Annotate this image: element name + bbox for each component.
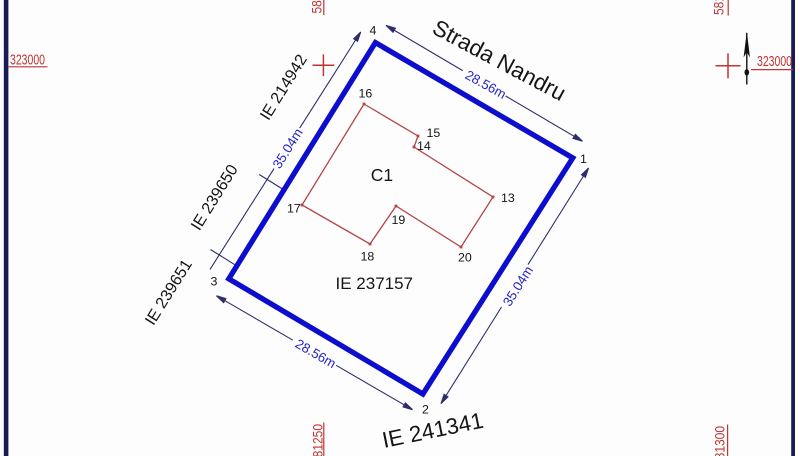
svg-text:3: 3 [211,275,218,289]
svg-text:581250: 581250 [310,0,325,14]
svg-text:IE 237157: IE 237157 [336,274,414,293]
svg-text:13: 13 [501,191,515,205]
svg-text:14: 14 [417,139,431,153]
svg-text:323000: 323000 [757,54,792,70]
svg-text:581300: 581300 [711,426,727,456]
svg-text:581300: 581300 [711,0,726,15]
svg-text:15: 15 [427,126,441,140]
svg-text:C1: C1 [371,165,393,185]
svg-text:1: 1 [580,152,587,166]
svg-text:16: 16 [359,87,373,101]
svg-text:2: 2 [422,403,429,417]
svg-text:17: 17 [287,202,301,216]
svg-text:19: 19 [392,213,406,227]
svg-text:4: 4 [370,24,377,38]
svg-text:20: 20 [458,251,472,265]
svg-text:18: 18 [361,250,375,264]
svg-text:581250: 581250 [309,424,325,456]
svg-text:323000: 323000 [10,53,45,69]
